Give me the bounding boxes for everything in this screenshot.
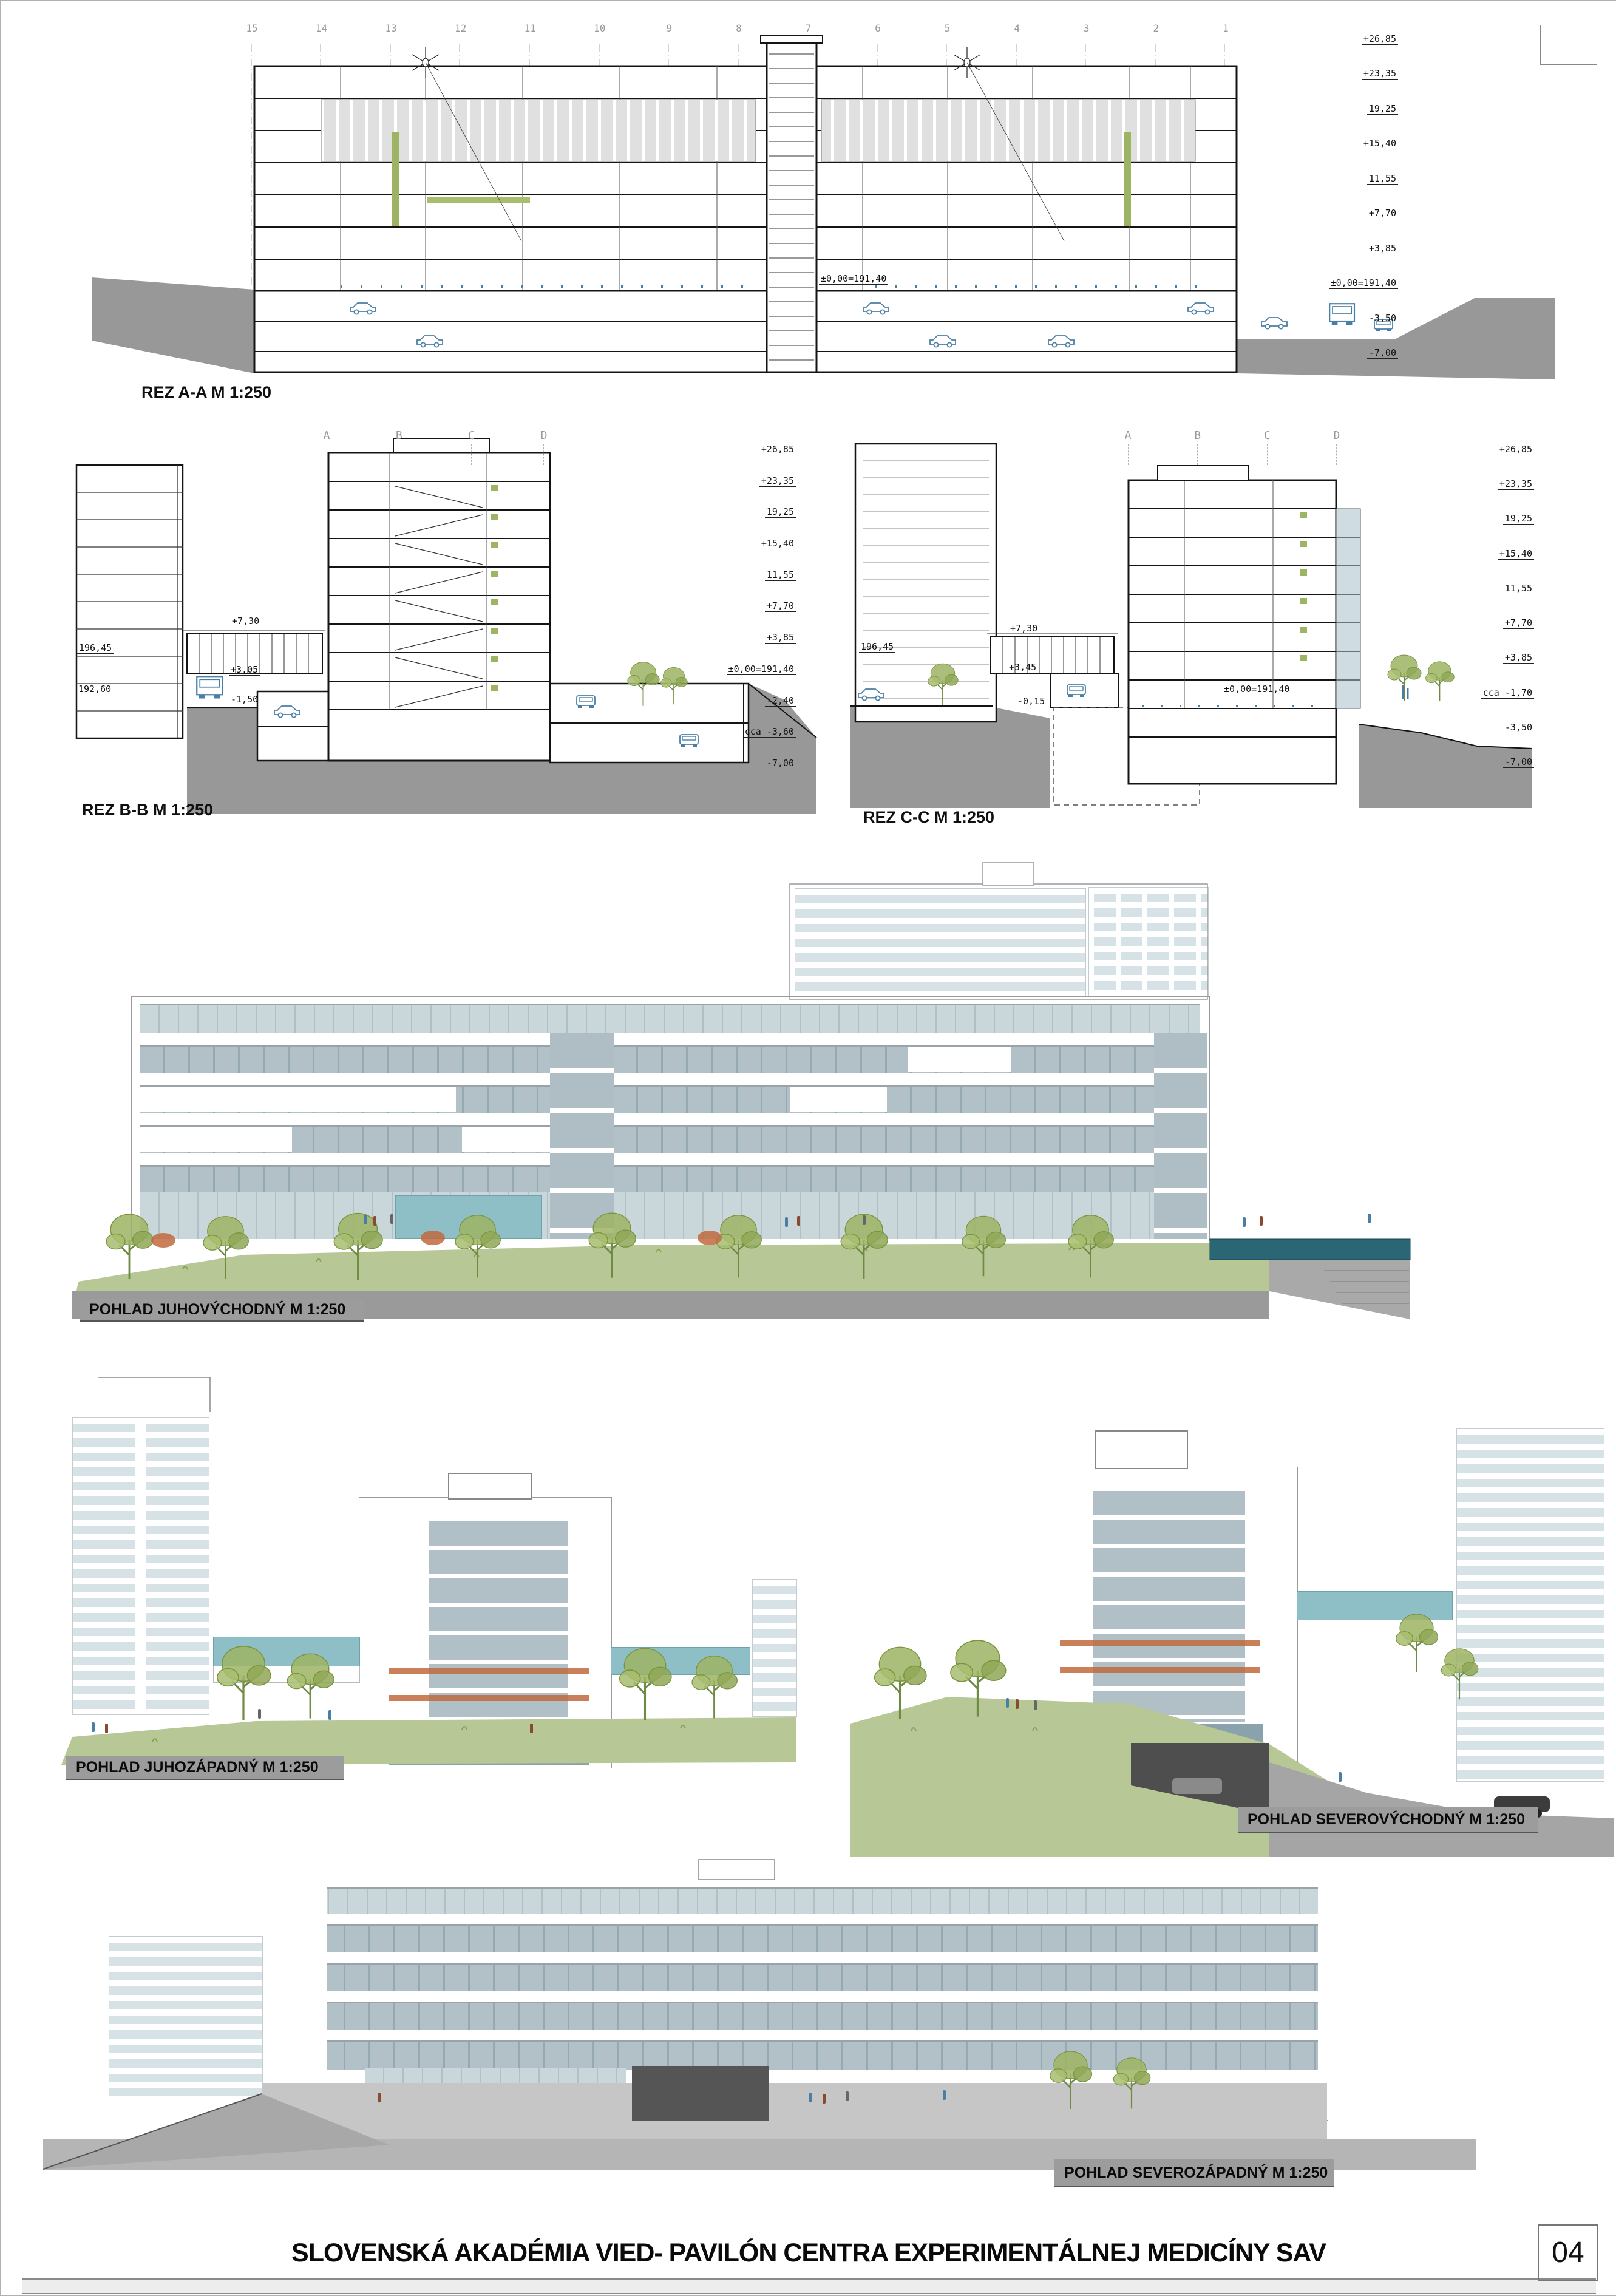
level-marker: -3,50 (1367, 313, 1398, 324)
grid-axis-letter: D (1329, 429, 1345, 465)
grid-axis-number: 2 (1148, 22, 1164, 34)
grid-axis-number: 3 (1079, 22, 1095, 34)
level-marker: +26,85 (759, 444, 796, 455)
level-marker: 19,25 (765, 506, 796, 518)
grid-axes-aa: 151413121110987654321 (244, 22, 1234, 34)
grid-axis-lines (251, 44, 1224, 286)
grid-axis-number: 13 (383, 22, 399, 34)
level-marker: +15,40 (1362, 138, 1398, 149)
level-marker: +15,40 (759, 538, 796, 549)
level-marker: +7,70 (1503, 617, 1534, 629)
level-note: +7,30 (1008, 623, 1039, 634)
grid-axis-letter: C (464, 429, 480, 465)
elevation-nw-label: POHLAD SEVEROZÁPADNÝ M 1:250 (1054, 2159, 1334, 2187)
grid-axis-letter: D (536, 429, 552, 465)
grid-axis-number: 10 (592, 22, 608, 34)
pool-wall (1210, 1239, 1410, 1260)
grid-axis-number: 1 (1218, 22, 1234, 34)
levels-aa: +26,85+23,3519,25+15,4011,55+7,70+3,85±0… (1288, 33, 1398, 359)
elevation-sw-label: POHLAD JUHOZÁPADNÝ M 1:250 (66, 1756, 344, 1780)
level-note: +7,30 (230, 616, 261, 627)
grid-axis-letter: A (319, 429, 334, 465)
section-aa-label: REZ A-A M 1:250 (141, 383, 271, 402)
level-marker: 19,25 (1503, 513, 1534, 525)
level-marker: +23,35 (1498, 478, 1534, 490)
level-marker: -7,00 (1367, 347, 1398, 359)
grid-axes-bb: ABCD (319, 429, 552, 465)
level-marker: +26,85 (1498, 444, 1534, 455)
level-note: -0,15 (1016, 696, 1047, 707)
level-marker: ±0,00=191,40 (727, 664, 796, 675)
grid-axis-number: 11 (522, 22, 538, 34)
level-note: ±0,00=191,40 (1222, 684, 1291, 695)
se-entrance-glazing (395, 1195, 542, 1239)
level-marker: 11,55 (765, 569, 796, 581)
level-marker: +3,85 (1503, 652, 1534, 664)
grid-axis-number: 8 (731, 22, 747, 34)
sheet-number: 04 (1552, 2236, 1584, 2269)
level-marker: ±0,00=191,40 (1329, 277, 1398, 289)
level-marker: -2,40 (765, 695, 796, 707)
tower-section (328, 453, 550, 761)
level-marker: +3,85 (1367, 243, 1398, 254)
grid-axis-number: 15 (244, 22, 260, 34)
terrain-left (92, 277, 254, 373)
level-marker: -7,00 (765, 758, 796, 769)
existing-building (76, 465, 183, 738)
level-marker: 11,55 (1367, 173, 1398, 185)
se-central-balcony-column (550, 1033, 614, 1239)
levels-bb: +26,85+23,3519,25+15,4011,55+7,70+3,85±0… (685, 444, 796, 769)
level-marker: cca -3,60 (743, 726, 796, 738)
existing-building (855, 444, 996, 722)
level-marker: -7,00 (1503, 756, 1534, 768)
grid-axis-number: 14 (314, 22, 330, 34)
elevation-se-label: POHLAD JUHOVÝCHODNÝ M 1:250 (80, 1299, 364, 1322)
section-cc-label: REZ C-C M 1:250 (863, 808, 994, 827)
grid-axis-letter: B (391, 429, 407, 465)
stair-flights (395, 486, 483, 707)
grid-axis-number: 9 (661, 22, 677, 34)
tower-section (1129, 480, 1336, 784)
basement-dashed (1054, 708, 1200, 805)
grid-axis-letter: B (1190, 429, 1206, 465)
grid-axis-number: 12 (453, 22, 469, 34)
section-bb-label: REZ B-B M 1:250 (82, 801, 213, 820)
grass-slope (73, 1243, 1269, 1306)
level-marker: +7,70 (1367, 208, 1398, 219)
elevation-ne-label: POHLAD SEVEROVÝCHODNÝ M 1:250 (1238, 1807, 1538, 1833)
people-figures (1403, 685, 1408, 699)
level-note: +3,05 (229, 665, 260, 676)
level-marker: +23,35 (759, 475, 796, 487)
stair-shaft (767, 41, 816, 372)
drawing-sheet: 151413121110987654321 ABCD ABCD +26,85+2… (0, 0, 1616, 2296)
level-marker: -3,50 (1503, 722, 1534, 733)
grid-axis-number: 5 (940, 22, 956, 34)
grid-axis-letter: C (1259, 429, 1275, 465)
level-note: -1,50 (229, 695, 260, 705)
level-marker: 19,25 (1367, 103, 1398, 115)
levels-cc: +26,85+23,3519,25+15,4011,55+7,70+3,85cc… (1426, 444, 1534, 768)
ramp (1269, 1260, 1410, 1319)
balcony-column (1336, 509, 1360, 708)
sheet-number-box: 04 (1538, 2224, 1598, 2281)
grid-axis-letter: A (1120, 429, 1136, 465)
sheet-title: SLOVENSKÁ AKADÉMIA VIED- PAVILÓN CENTRA … (1, 2238, 1616, 2268)
level-marker: 11,55 (1503, 583, 1534, 594)
se-right-balcony-column (1154, 1033, 1207, 1239)
frame-corner-box (1540, 25, 1597, 65)
level-marker: +23,35 (1362, 68, 1398, 80)
level-note: 192,60 (76, 684, 113, 695)
grid-axes-cc: ABCD (1120, 429, 1345, 465)
level-marker: +3,85 (765, 632, 796, 644)
level-note: +3,45 (1007, 662, 1038, 673)
level-note: 196,45 (859, 642, 895, 653)
level-note: ±0,00=191,40 (819, 274, 888, 285)
grid-axis-number: 4 (1009, 22, 1025, 34)
level-marker: +26,85 (1362, 33, 1398, 45)
level-marker: +15,40 (1498, 548, 1534, 560)
level-marker: cca -1,70 (1481, 687, 1534, 699)
level-marker: +7,70 (765, 600, 796, 612)
level-note: 196,45 (77, 643, 114, 654)
star-symbol (412, 47, 439, 78)
grid-axis-number: 7 (801, 22, 816, 34)
star-symbol (954, 47, 980, 78)
title-block-strip (22, 2278, 1596, 2294)
truck-icon (197, 676, 223, 698)
grid-axis-number: 6 (870, 22, 886, 34)
